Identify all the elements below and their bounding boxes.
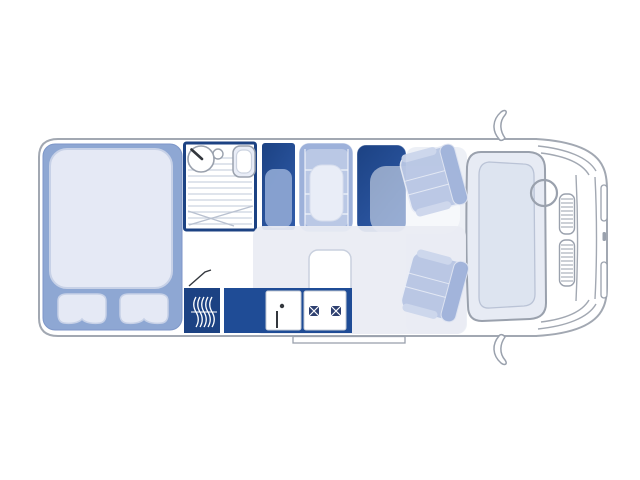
- sink-unit: [266, 291, 301, 330]
- grille-vent-lower-icon: [560, 240, 575, 286]
- entry-step: [293, 337, 405, 344]
- wardrobe-inner: [265, 169, 292, 228]
- headlight-upper-icon: [601, 185, 607, 221]
- windshield: [466, 152, 546, 321]
- rear-bedroom: [43, 144, 182, 330]
- side-mirror-top-icon: [494, 111, 506, 141]
- bench-cushion: [310, 165, 343, 221]
- wardrobe-cabinet: [262, 143, 295, 230]
- toilet-icon: [233, 146, 255, 177]
- motorhome-floorplan: [0, 0, 640, 480]
- burner-icon-right: [330, 305, 342, 317]
- hob-unit: [304, 291, 346, 330]
- pillow-left-icon: [58, 294, 106, 323]
- washroom: [185, 143, 256, 230]
- sink-drain-icon: [280, 304, 284, 308]
- windshield-inner: [479, 162, 535, 308]
- pillow-right-icon: [120, 294, 168, 323]
- grille-badge-dot: [603, 232, 607, 241]
- side-mirror-bottom-icon: [494, 335, 506, 365]
- floorplan-canvas: [0, 0, 640, 480]
- bed-mattress: [50, 149, 172, 288]
- grille-vent-upper-icon: [560, 194, 575, 234]
- headlight-lower-icon: [601, 262, 607, 298]
- burner-icon-left: [308, 305, 320, 317]
- heater-unit: [184, 288, 220, 333]
- travel-seat-bench: [299, 143, 353, 232]
